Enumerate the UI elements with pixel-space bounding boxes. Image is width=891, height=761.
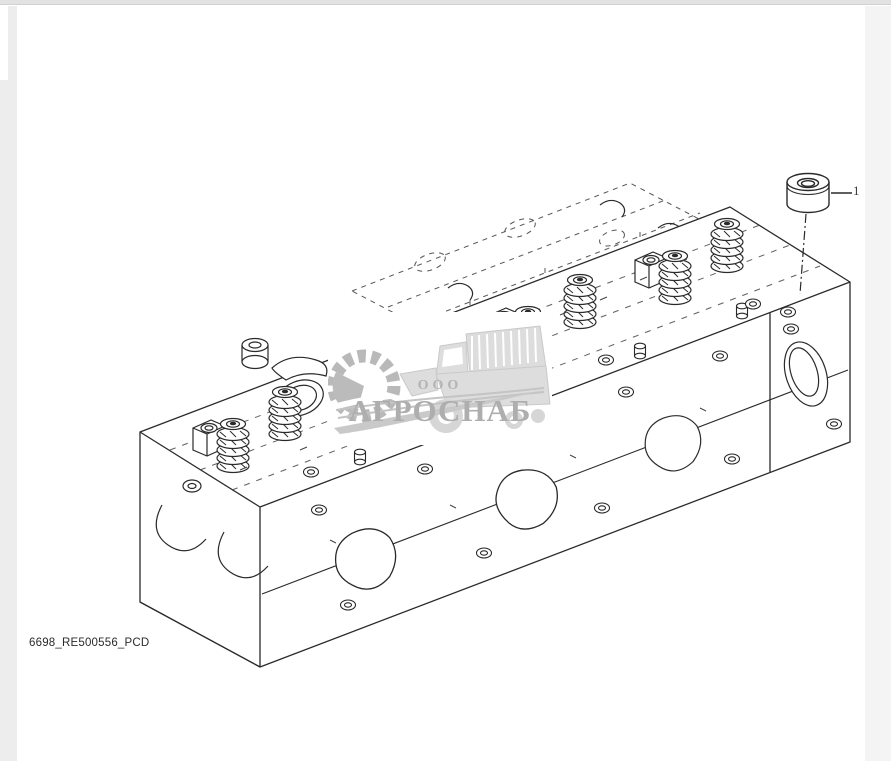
watermark: ООО АГРОСНАБ: [328, 312, 552, 445]
watermark-company-prefix: ООО: [328, 378, 552, 394]
callout-1-label: 1: [853, 183, 860, 199]
top-bar: [0, 0, 891, 5]
watermark-company-name: АГРОСНАБ: [328, 393, 552, 429]
cup-plug-part: [787, 174, 829, 213]
right-strip[interactable]: [865, 6, 891, 761]
figure-caption: 6698_RE500556_PCD: [29, 637, 149, 649]
stud-boss: [242, 339, 268, 369]
left-strip-lower: [0, 80, 8, 761]
left-strip: [8, 6, 17, 761]
page: 1 6698_RE500556_PCD: [0, 0, 891, 761]
